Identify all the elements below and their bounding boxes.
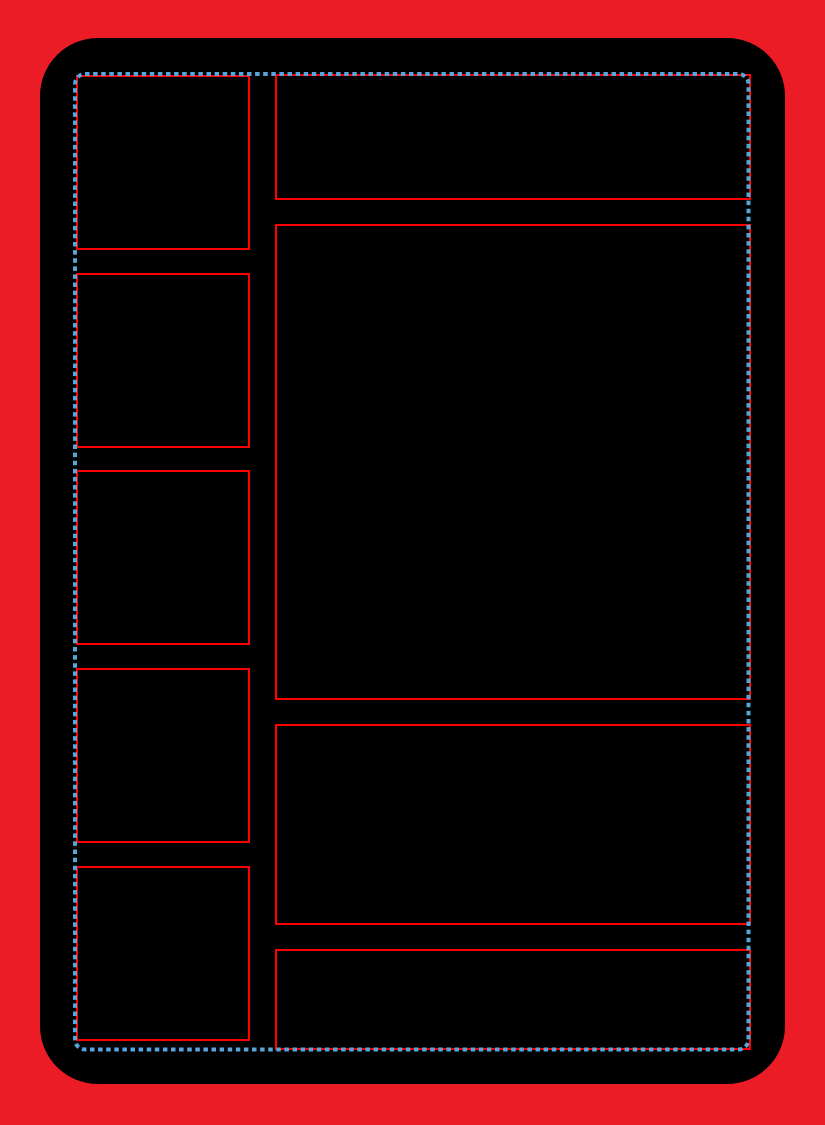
left-panel-2: [76, 273, 250, 448]
lower-panel: [275, 724, 751, 925]
left-panel-3: [76, 470, 250, 645]
bottom-panel: [275, 949, 751, 1050]
header-panel: [275, 74, 751, 200]
left-panel-5: [76, 866, 250, 1041]
bleed-area: [0, 0, 825, 1125]
left-panel-1: [76, 75, 250, 250]
main-panel: [275, 224, 751, 700]
left-panel-4: [76, 668, 250, 843]
